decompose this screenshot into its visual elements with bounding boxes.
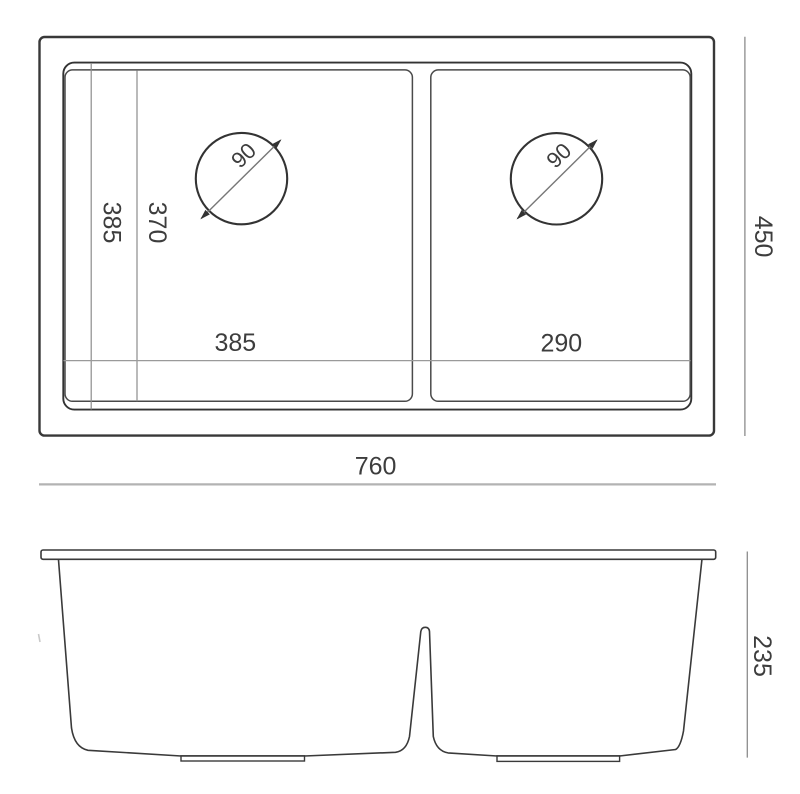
svg-text:385: 385: [98, 202, 126, 244]
svg-text:450: 450: [749, 216, 777, 258]
svg-text:235: 235: [748, 635, 776, 677]
svg-text:290: 290: [540, 330, 582, 358]
svg-text:760: 760: [355, 453, 397, 481]
svg-text:385: 385: [214, 329, 256, 357]
svg-text:370: 370: [143, 202, 171, 244]
